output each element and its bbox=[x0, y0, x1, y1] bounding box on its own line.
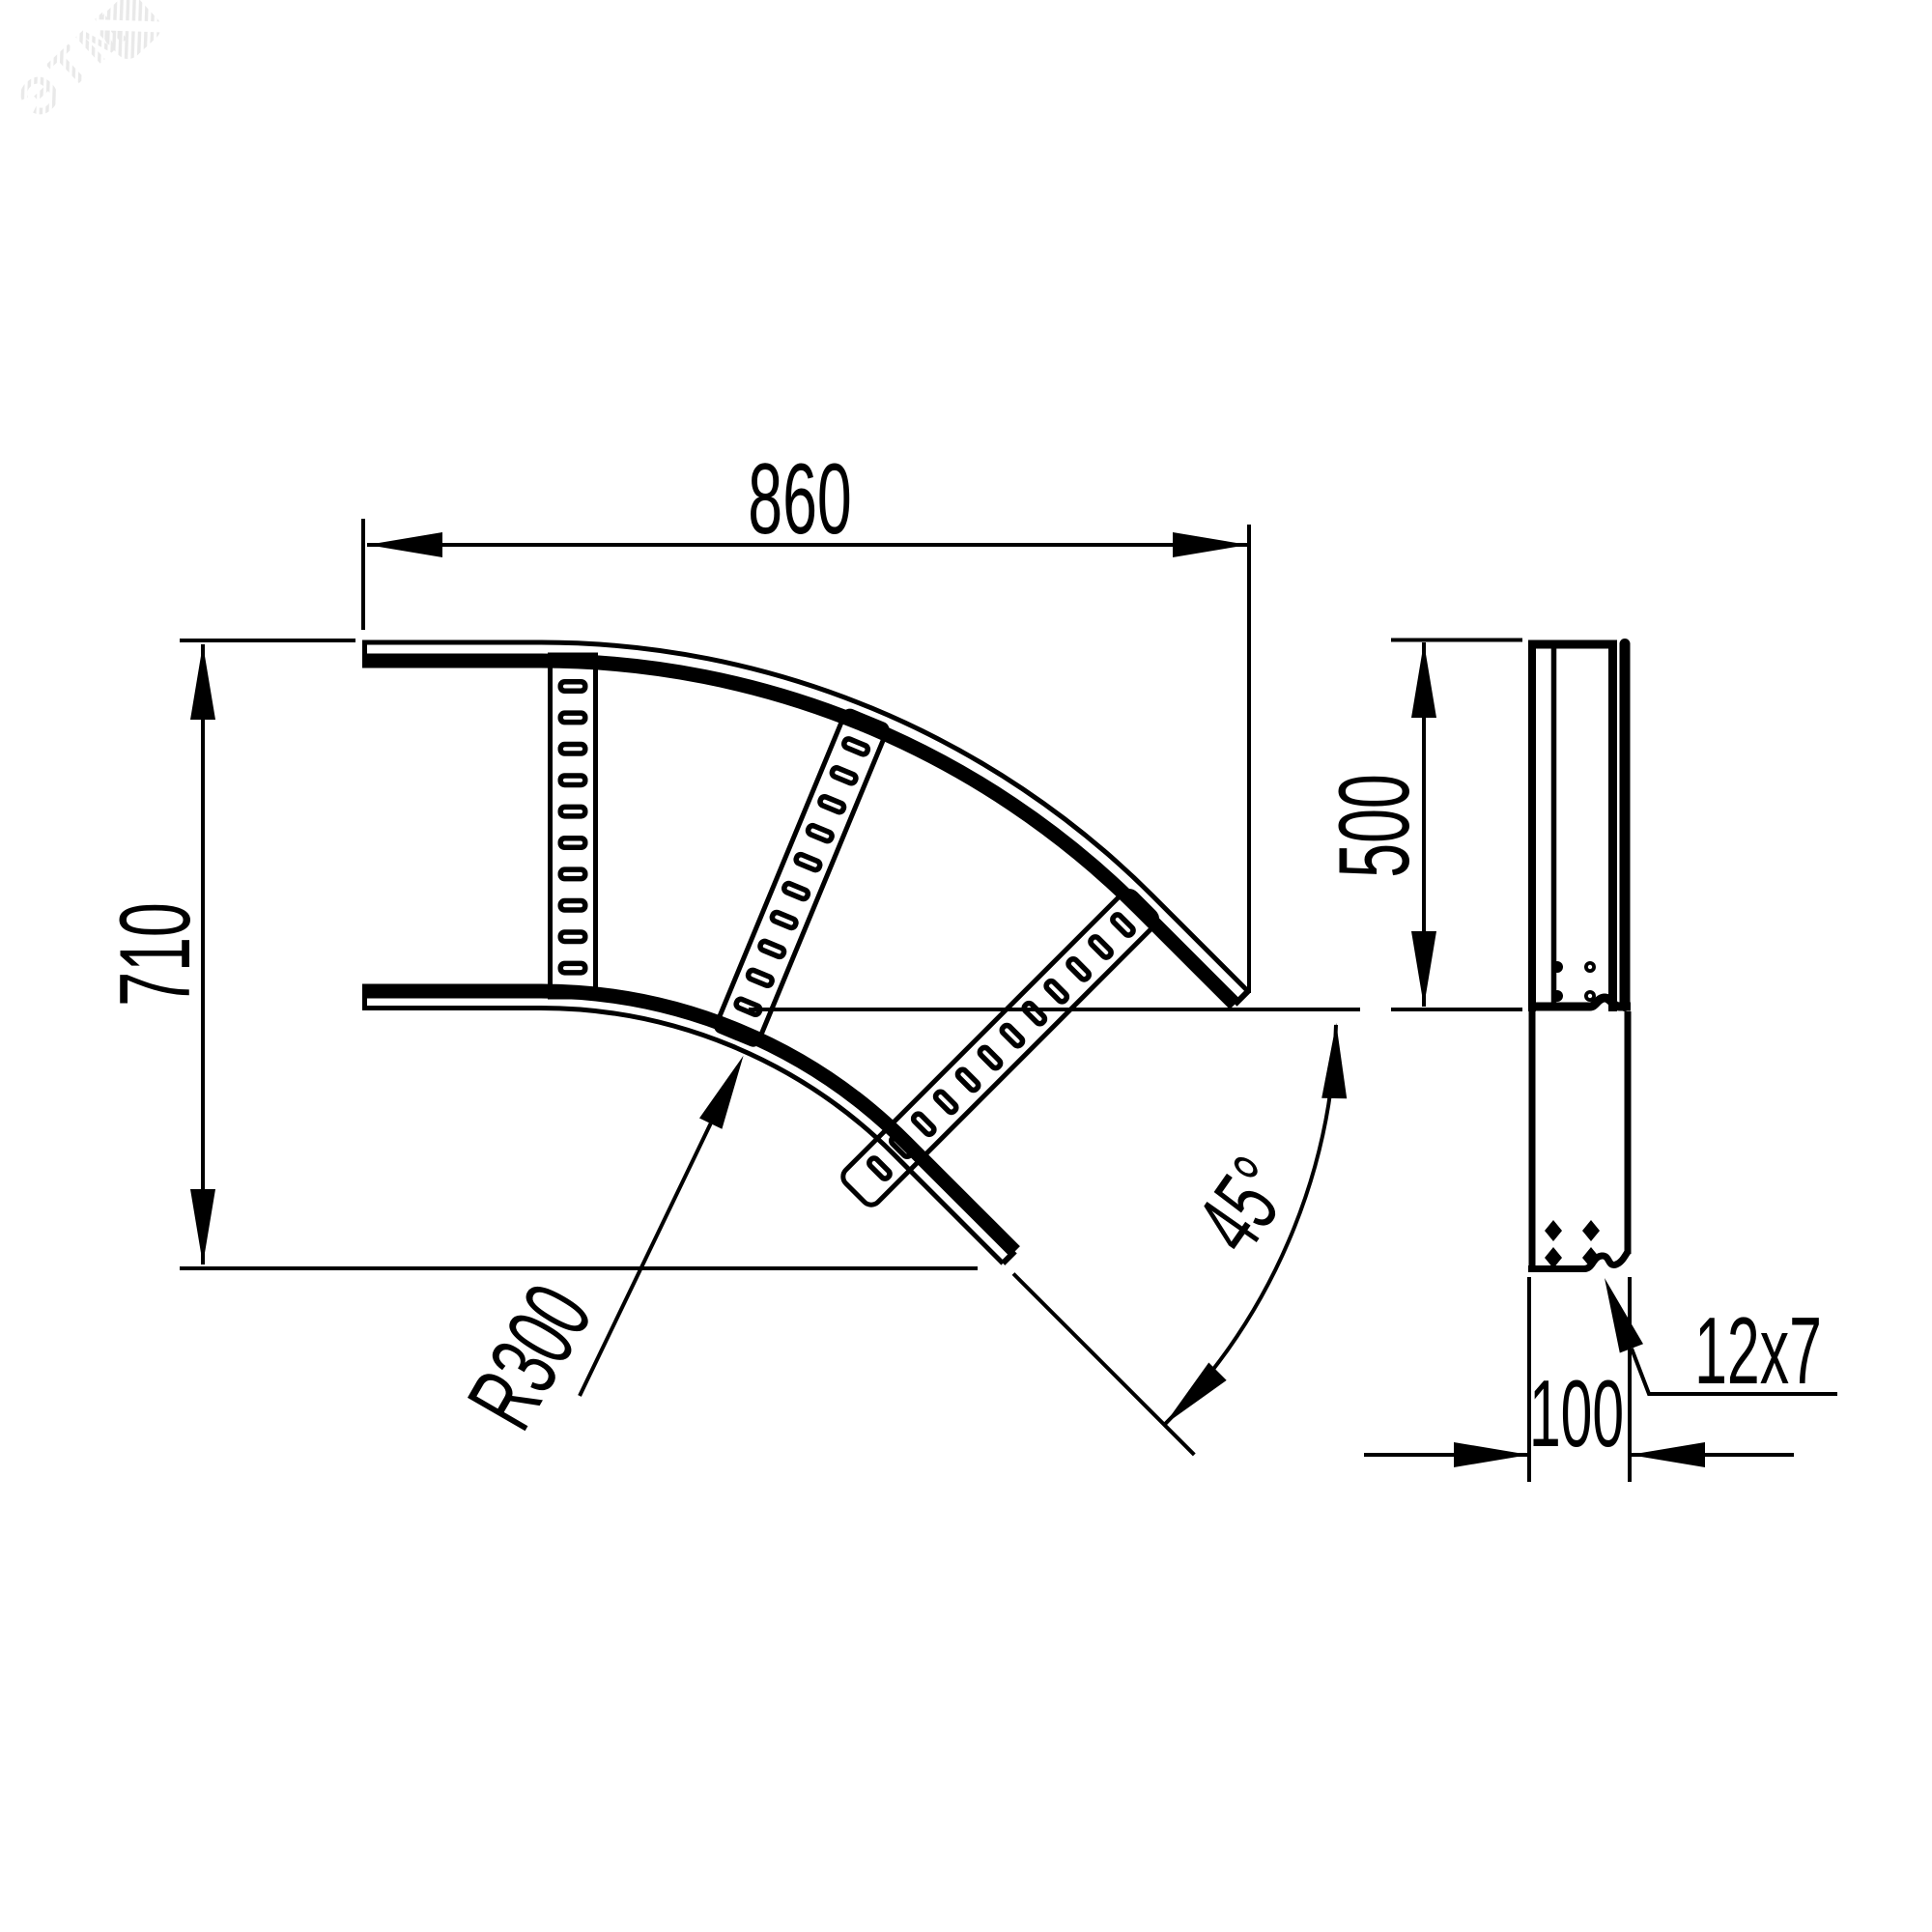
profile-lower-section bbox=[1528, 1011, 1628, 1272]
watermark-logo: ЭТМ bbox=[7, 0, 167, 129]
arrowhead-left-icon bbox=[367, 532, 442, 557]
profile-upper-section bbox=[1528, 639, 1631, 1011]
dimension-500: 500 bbox=[1319, 640, 1522, 1010]
arrowhead-left-icon bbox=[1630, 1442, 1705, 1467]
arrowhead-right-icon bbox=[1173, 532, 1248, 557]
dimension-label-45deg: 45° bbox=[1177, 1140, 1311, 1270]
radius-leader-line bbox=[580, 1123, 711, 1396]
dimension-angle-45: 45° bbox=[749, 1009, 1360, 1455]
side-view: 500 100 12x7 bbox=[1319, 639, 1837, 1482]
radius-arrowhead-icon bbox=[699, 1056, 744, 1129]
arc-arrowhead-down-icon bbox=[1164, 1363, 1226, 1425]
arrowhead-up-icon bbox=[190, 644, 215, 720]
dimension-label-860: 860 bbox=[748, 443, 852, 554]
drawing-page: ЭТМ 860 710 bbox=[0, 0, 1932, 1932]
arrowhead-up-icon bbox=[1411, 642, 1436, 718]
technical-drawing-canvas: ЭТМ 860 710 bbox=[0, 0, 1932, 1932]
dimension-label-710: 710 bbox=[99, 902, 211, 1007]
dimension-label-R300: R300 bbox=[447, 1267, 612, 1445]
dimension-label-100: 100 bbox=[1529, 1362, 1624, 1467]
far-flange-strip bbox=[1620, 639, 1631, 1011]
callout-arrowhead-icon bbox=[1605, 1278, 1643, 1353]
arc-arrowhead-up-icon bbox=[1321, 1023, 1347, 1098]
dimension-label-500: 500 bbox=[1319, 774, 1430, 878]
arrowhead-down-icon bbox=[1411, 931, 1436, 1007]
joint-holes bbox=[1551, 961, 1596, 1002]
rung-2 bbox=[715, 709, 889, 1046]
rung-3 bbox=[839, 887, 1161, 1208]
plan-view: 860 710 bbox=[99, 443, 1360, 1454]
slot-rivets bbox=[1545, 1220, 1600, 1268]
callout-12x7: 12x7 bbox=[1605, 1278, 1837, 1405]
arrowhead-right-icon bbox=[1454, 1442, 1529, 1467]
angle-leg-line bbox=[1013, 1274, 1194, 1455]
ladder-bend-body bbox=[362, 640, 1248, 1264]
callout-label-12x7: 12x7 bbox=[1694, 1298, 1822, 1404]
bottom-edge-with-break bbox=[1528, 1252, 1628, 1269]
arrowhead-down-icon bbox=[190, 1189, 215, 1264]
rung-1 bbox=[551, 655, 596, 997]
dimension-radius-R300: R300 bbox=[447, 1056, 744, 1446]
